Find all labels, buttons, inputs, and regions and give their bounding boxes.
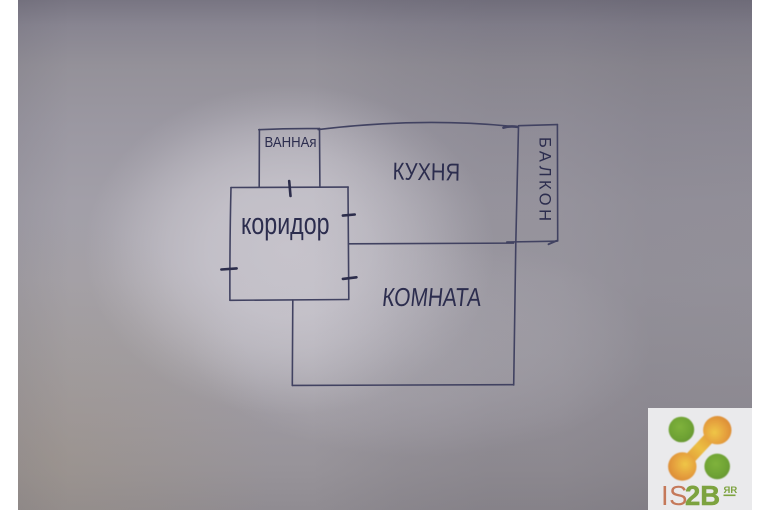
svg-text:КОМНАТА: КОМНАТА (381, 282, 484, 312)
svg-text:коридор: коридор (241, 206, 330, 241)
svg-text:БАЛКОН: БАЛКОН (536, 137, 554, 221)
svg-text:2B: 2B (685, 480, 720, 510)
svg-text:ЯR: ЯR (724, 485, 738, 496)
svg-text:IS: IS (661, 480, 688, 510)
svg-text:ВАННАя: ВАННАя (265, 134, 317, 151)
svg-text:КУХНЯ: КУХНЯ (392, 159, 460, 187)
